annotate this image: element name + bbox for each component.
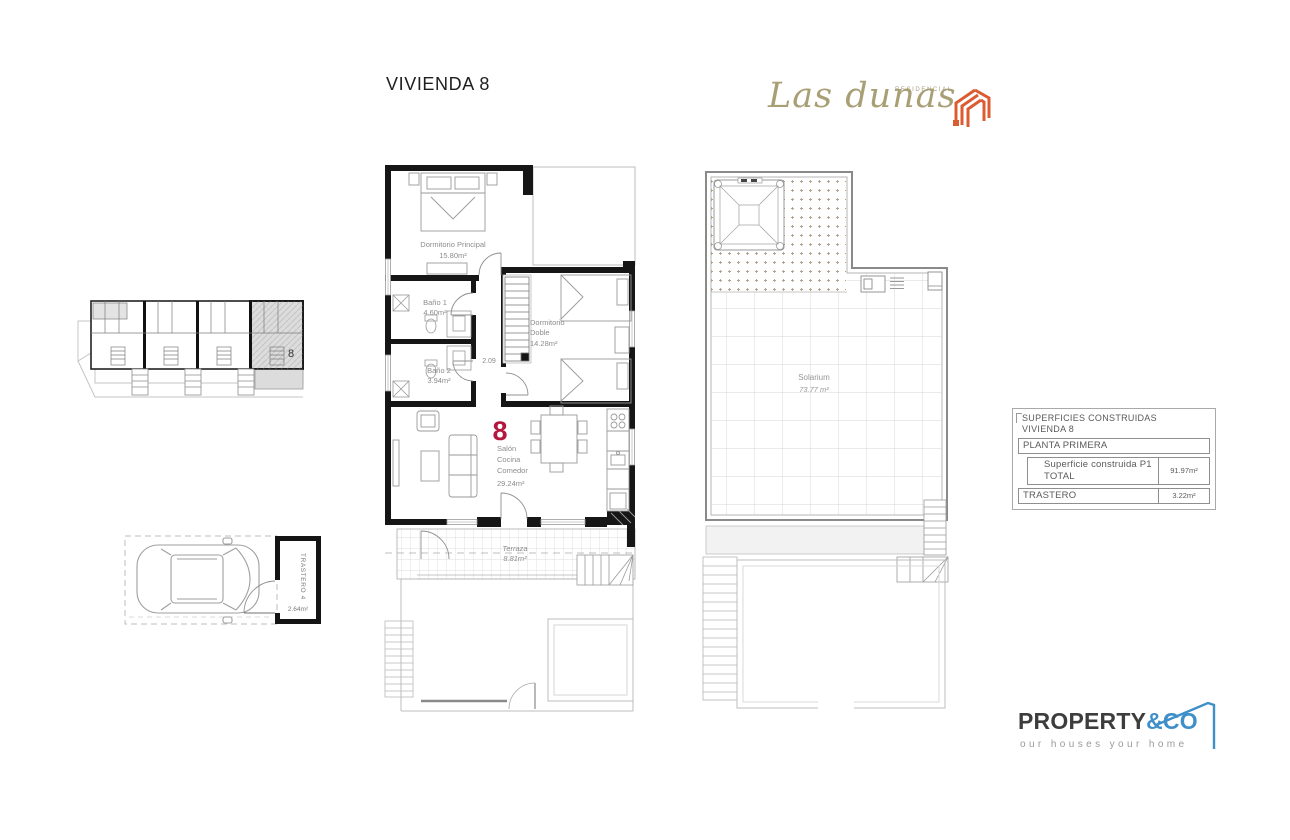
unit-number-8: 8 xyxy=(492,416,507,446)
page-title: VIVIENDA 8 xyxy=(386,74,490,95)
skylight xyxy=(714,178,784,250)
parking-plan: TRASTERO 4 2.64m² xyxy=(123,533,323,628)
house-roof-icon xyxy=(1154,697,1230,753)
trastero-door-arc xyxy=(244,581,275,613)
car-top-view xyxy=(137,538,259,623)
floorplan-sheet: VIVIENDA 8 Las dunas RESIDENCIAL xyxy=(0,0,1290,840)
label-dormitorio-principal: Dormitorio Principal xyxy=(420,240,486,249)
garden-opening xyxy=(818,698,854,710)
area-bano2: 3.94m² xyxy=(427,376,451,385)
table-title: SUPERFICIES CONSTRUIDAS VIVIENDA 8 xyxy=(1018,413,1210,435)
roof-plan: Solarium 73.77 m² xyxy=(698,168,958,728)
label-doble-1: Dormitorio xyxy=(530,318,565,327)
row-planta-label: PLANTA PRIMERA xyxy=(1019,439,1209,453)
label-bano2: Baño 2 xyxy=(427,366,451,375)
site-key-plan: 8 xyxy=(75,293,310,421)
porch-stairs xyxy=(132,369,254,395)
area-dormitorio-principal: 15.80m² xyxy=(439,251,467,260)
footer-brand-primary: PROPERTY xyxy=(1018,708,1146,734)
row-p1-label: Superficie construida P1 TOTAL xyxy=(1028,458,1158,484)
neighbour-void xyxy=(533,167,635,265)
label-salon-3: Comedor xyxy=(497,466,528,475)
row-trastero-value: 3.22m² xyxy=(1158,489,1209,503)
garden xyxy=(401,579,633,711)
trastero-area: 2.64m² xyxy=(288,606,309,613)
party-walls xyxy=(143,301,252,369)
interior-stairs xyxy=(503,275,531,363)
table-title-line1: SUPERFICIES CONSTRUIDAS xyxy=(1022,413,1210,424)
table-row-p1-total: Superficie construida P1 TOTAL 91.97m² xyxy=(1027,457,1210,485)
keyplan-block xyxy=(93,303,127,319)
winder-stair xyxy=(897,557,948,582)
brand-residencial-label: RESIDENCIAL xyxy=(895,87,953,93)
brand-name: Las dunas xyxy=(768,76,957,116)
beds-doble xyxy=(561,275,631,403)
garden-gate xyxy=(509,683,535,709)
footer-tagline: our houses your home xyxy=(1020,739,1278,750)
cube-stripes-icon xyxy=(947,82,995,132)
living-furniture xyxy=(393,406,587,497)
icon-square xyxy=(953,120,959,126)
area-terraza: 8.81m² xyxy=(503,554,527,563)
table-title-line2: VIVIENDA 8 xyxy=(1022,424,1210,435)
trastero-label: TRASTERO 4 xyxy=(299,553,306,600)
area-salon: 29.24m² xyxy=(497,479,525,488)
area-bano1: 4.60m² xyxy=(423,308,447,317)
label-doble-2: Doble xyxy=(530,328,550,337)
dimension-label: 2.09 xyxy=(482,358,496,365)
highlighted-porch xyxy=(255,369,303,389)
exterior-stair xyxy=(577,555,633,585)
solarium-tiles-right xyxy=(847,273,942,515)
label-bano1: Baño 1 xyxy=(423,298,447,307)
main-floor-plan: Dormitorio Principal 15.80m² Baño 1 4.60… xyxy=(383,163,643,723)
neighbour-stairs xyxy=(385,621,413,697)
area-doble: 14.28m² xyxy=(530,339,558,348)
row-trastero-label: TRASTERO xyxy=(1019,489,1158,503)
footer-brand-name: PROPERTY&CO xyxy=(1018,708,1278,735)
lower-band xyxy=(706,526,935,554)
footer-brand: PROPERTY&CO our houses your home xyxy=(1018,708,1278,750)
label-solarium: Solarium xyxy=(798,373,830,382)
roof-stair-right xyxy=(924,500,946,555)
row-p1-value: 91.97m² xyxy=(1158,458,1209,484)
roof-stair-left xyxy=(703,557,737,700)
brand-lasdunas: Las dunas RESIDENCIAL xyxy=(768,76,1018,146)
area-solarium: 73.77 m² xyxy=(799,385,829,394)
solarium-tiles-left xyxy=(711,292,847,515)
table-row-planta: PLANTA PRIMERA xyxy=(1018,438,1210,454)
surface-summary-table: SUPERFICIES CONSTRUIDAS VIVIENDA 8 PLANT… xyxy=(1012,408,1216,510)
label-salon-2: Cocina xyxy=(497,455,521,464)
keyplan-unit-number: 8 xyxy=(288,348,294,360)
table-row-trastero: TRASTERO 3.22m² xyxy=(1018,488,1210,504)
label-terraza: Terraza xyxy=(502,544,527,553)
